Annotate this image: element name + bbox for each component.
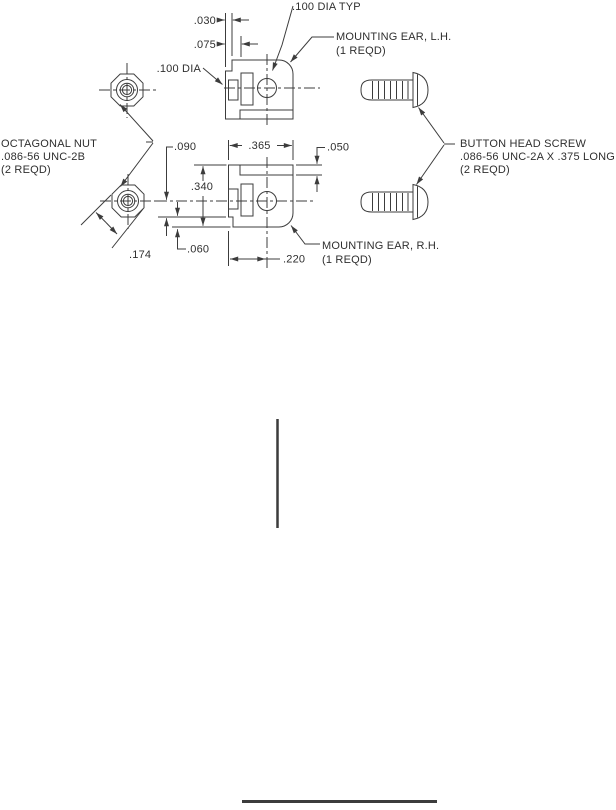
dim-365-label: .365 — [248, 140, 270, 152]
leader-arrow — [120, 105, 153, 142]
dim-050-lines — [296, 148, 325, 193]
engineering-drawing: .030 .075 .100 DIA .100 DIA TYP MOUNTING… — [0, 0, 616, 810]
dim-090-label: .090 — [174, 141, 196, 153]
button-head-screw-bottom-view — [361, 185, 428, 220]
ear-lh-callout-line1: MOUNTING EAR, L.H. — [336, 31, 451, 43]
ear-lh-leader-arrow — [291, 37, 335, 62]
screw-callout-line1: BUTTON HEAD SCREW — [460, 138, 586, 150]
dim-220-lines — [229, 231, 281, 266]
screw-callout-leader — [417, 108, 456, 185]
nut-callout-leader — [120, 105, 153, 187]
dim-100-dia-typ-label: .100 DIA TYP — [292, 1, 361, 13]
dim-030-label: .030 — [194, 15, 216, 27]
ear-recess-line — [240, 110, 293, 119]
octagonal-nut-bottom-view — [100, 174, 157, 229]
nut-callout-line2: .086-56 UNC-2B — [1, 151, 85, 163]
dia-leader-arrow — [203, 68, 223, 85]
dim-174-label: .174 — [129, 249, 151, 261]
extension-line — [81, 195, 111, 225]
nut-callout-line1: OCTAGONAL NUT — [1, 138, 97, 150]
ear-boss-small — [229, 80, 239, 100]
ear-rh-leader-arrow — [291, 226, 320, 245]
dim-060-label: .060 — [187, 244, 209, 256]
dim-090-340-060-lines — [158, 147, 231, 249]
dim-220-label: .220 — [283, 254, 305, 266]
mounting-ear-rh-view — [156, 157, 313, 268]
octagonal-nut-top-view — [99, 63, 156, 118]
ear-rh-callout-line2: (1 REQD) — [322, 254, 372, 266]
dim-arrow — [106, 223, 117, 235]
dim-bracket-arrow — [167, 147, 174, 200]
screw-callout-line3: (2 REQD) — [460, 164, 510, 176]
dim-arrow — [96, 213, 106, 223]
dim-030-075-lines — [217, 13, 258, 67]
ear-boss-large — [241, 73, 253, 105]
drawing-labels: .030 .075 .100 DIA .100 DIA TYP MOUNTING… — [1, 1, 615, 266]
ear-boss-small — [229, 189, 239, 209]
dim-050-label: .050 — [327, 142, 349, 154]
dim-340-label: .340 — [191, 181, 213, 193]
dim-bracket-arrow — [178, 229, 187, 249]
mounting-ear-lh-view — [224, 54, 320, 128]
nut-callout-line3: (2 REQD) — [1, 164, 51, 176]
leader-arrow — [121, 143, 154, 187]
ear-rh-callout-line1: MOUNTING EAR, R.H. — [322, 240, 439, 252]
dim-075-label: .075 — [194, 39, 216, 51]
button-head-screw-top-view — [361, 73, 428, 108]
leader-arrow — [417, 145, 445, 185]
ear-boss-large — [241, 184, 253, 216]
dim-100-dia-label: .100 DIA — [157, 63, 202, 75]
leader-arrow — [419, 108, 445, 144]
dim-bracket-arrow — [317, 148, 325, 164]
ear-lh-callout-line2: (1 REQD) — [336, 45, 386, 57]
screw-callout-line2: .086-56 UNC-2A X .375 LONG — [460, 151, 615, 163]
